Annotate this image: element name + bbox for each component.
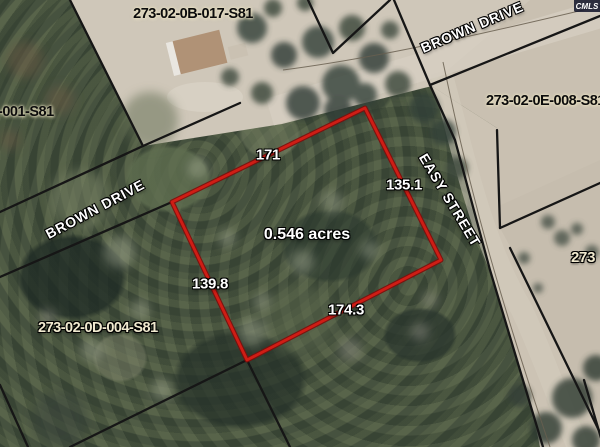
parcel-id-left-edge: -001-S81 — [0, 105, 54, 120]
dimension-bottom: 174.3 — [328, 303, 364, 318]
parcel-id-top: 273-02-0B-017-S81 — [133, 7, 253, 22]
parcel-id-right-edge: 273 — [571, 250, 595, 265]
map-terrain-and-boundaries — [0, 0, 600, 447]
dimension-right: 135.1 — [386, 178, 422, 193]
aerial-parcel-map: 273-02-0B-017-S81 -001-S81 BROWN DRIVE 2… — [0, 0, 600, 447]
parcel-id-bottom-left: 273-02-0D-004-S81 — [38, 321, 158, 336]
dimension-left: 139.8 — [192, 277, 228, 292]
dimension-top: 171 — [256, 148, 280, 163]
cmls-watermark-logo: CMLS — [574, 0, 600, 12]
parcel-id-right: 273-02-0E-008-S81 — [486, 94, 600, 109]
area-label: 0.546 acres — [264, 227, 350, 243]
